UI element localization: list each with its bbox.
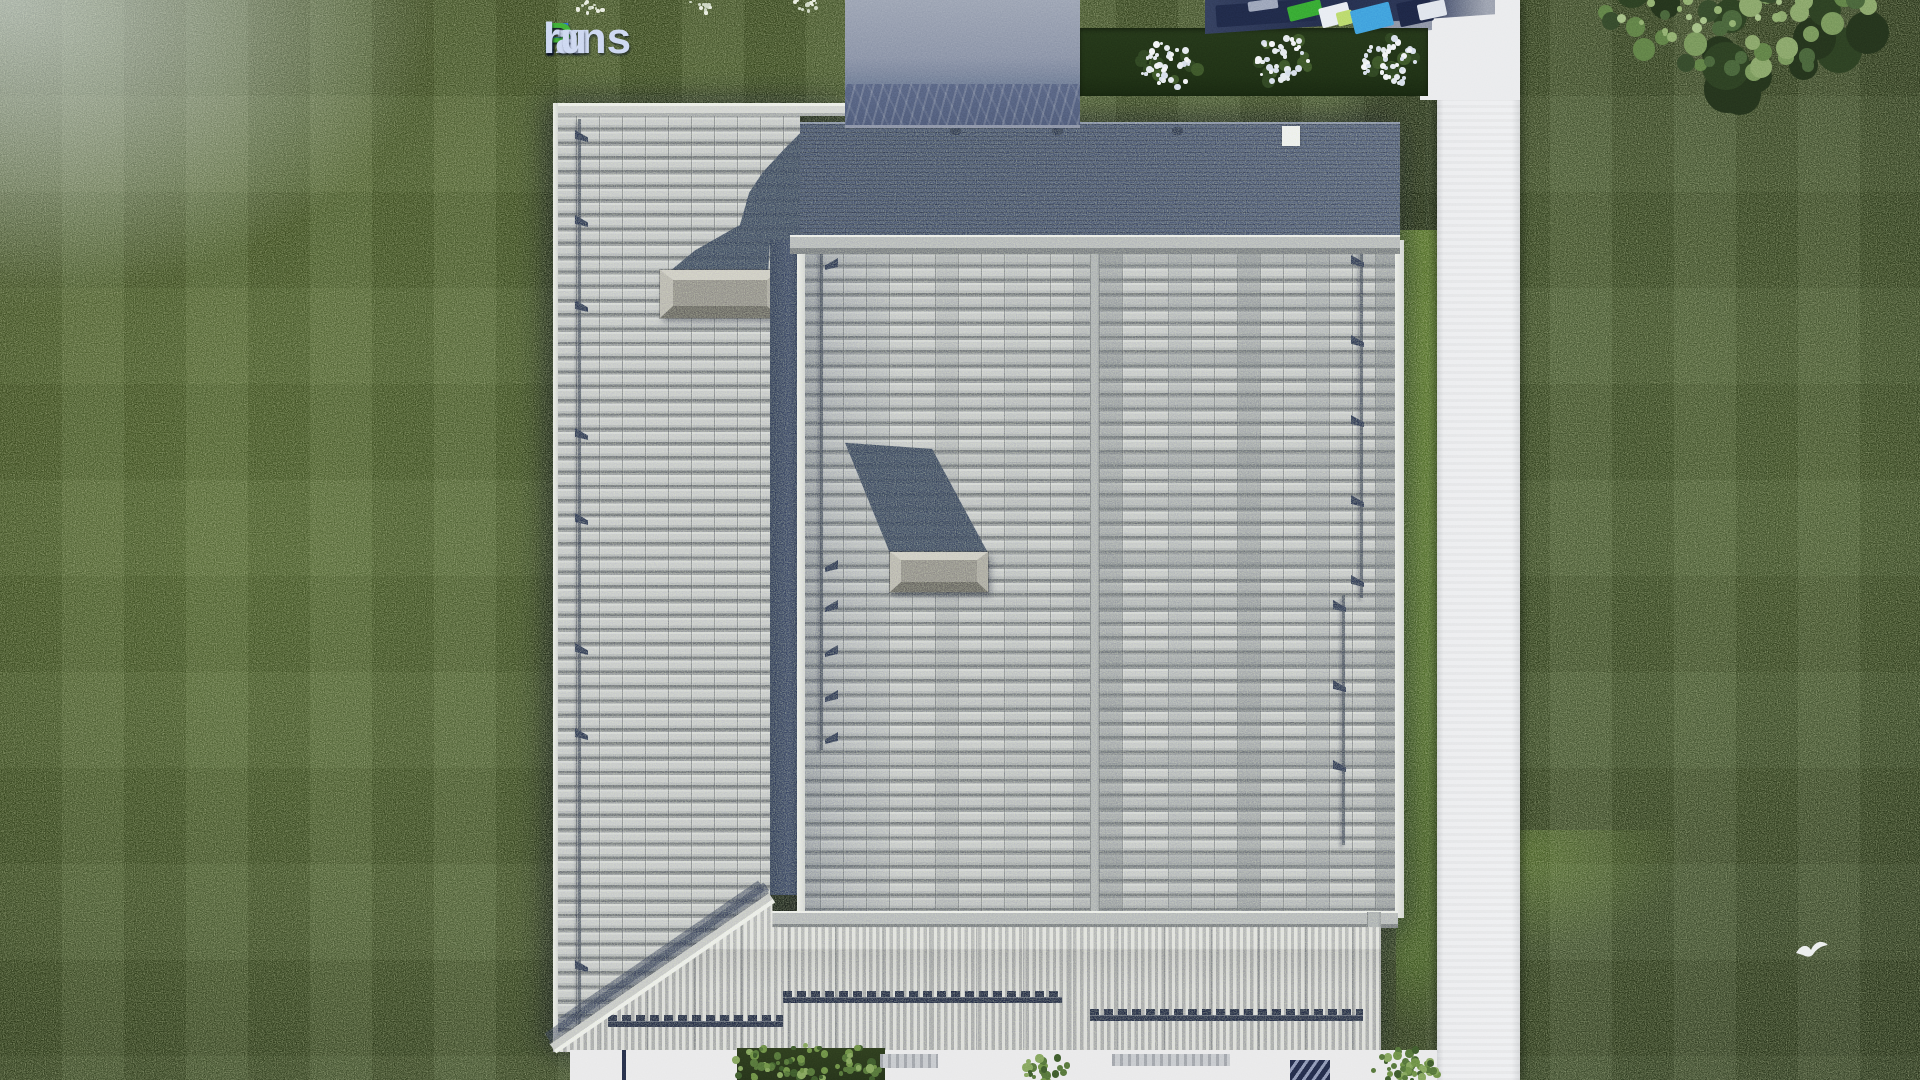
sprig-dot — [801, 8, 804, 11]
bush-leaf — [866, 1064, 874, 1072]
bush-leaf — [765, 1068, 769, 1072]
bush-flower — [1182, 47, 1189, 54]
grass-bright-corner — [1520, 830, 1690, 950]
bush-leaf — [856, 1065, 861, 1070]
bush-flower — [1278, 44, 1283, 49]
bush-flower — [1255, 56, 1262, 63]
bush-leaf — [1385, 1076, 1391, 1080]
bush-leaf — [1393, 1051, 1402, 1060]
sprig-dot — [709, 6, 712, 9]
bush-flower — [1153, 41, 1160, 48]
bush-flower — [1290, 37, 1294, 41]
tree-highlight — [1692, 23, 1702, 33]
bush-flower — [1162, 67, 1167, 72]
bush-leaf — [774, 1052, 781, 1059]
tree-highlight — [1686, 14, 1691, 19]
bottom-patio-strip — [553, 1046, 1443, 1080]
bush-flower — [1391, 44, 1397, 50]
sprig-dot — [576, 7, 578, 9]
bush-leaf — [1395, 1047, 1400, 1052]
tree-highlight — [1662, 28, 1668, 34]
bush-flower — [1146, 66, 1153, 73]
bush-flower — [1283, 54, 1288, 59]
bush-leaf — [846, 1058, 852, 1064]
bush-flower — [1383, 74, 1389, 80]
logo-letter: ru — [543, 14, 587, 64]
bush-leaf — [1412, 1046, 1420, 1054]
sprig-dot — [588, 6, 592, 10]
bush-flower — [1269, 78, 1275, 84]
bird — [1794, 936, 1830, 964]
bush-leaf — [732, 1056, 740, 1064]
bush-flower — [1153, 56, 1157, 60]
bush-leaf — [1412, 1071, 1418, 1077]
bush-leaf — [807, 1048, 811, 1052]
bush-flower — [1272, 48, 1278, 54]
patio-grate-1 — [880, 1054, 938, 1068]
aerial-roof-render: FixPlans.ru — [0, 0, 1920, 1080]
bush-leaf — [1421, 1066, 1427, 1072]
driveway — [845, 0, 1080, 128]
bush-flower — [1175, 48, 1179, 52]
bush-leaf — [817, 1046, 821, 1050]
bush-flower — [1269, 70, 1273, 74]
driveway-edge — [845, 125, 1080, 128]
bush-flower — [1376, 46, 1381, 51]
bush-leaf — [776, 1061, 780, 1065]
bush-flower — [1380, 63, 1386, 69]
bush-leaf — [1429, 1067, 1437, 1075]
bush-leaf — [854, 1045, 860, 1051]
bush-leaf — [1418, 1073, 1427, 1080]
bush-leaf — [784, 1071, 790, 1077]
bush-flower — [1366, 64, 1371, 69]
tree-foliage — [1745, 35, 1760, 50]
tree-highlight — [1667, 32, 1677, 42]
bush-leaf — [1041, 1066, 1047, 1072]
tree-highlight — [1617, 14, 1626, 23]
bush-leaf — [1054, 1054, 1061, 1061]
patio-grate-2 — [1112, 1054, 1230, 1066]
bush-flower — [1399, 79, 1405, 85]
bush-leaf — [800, 1068, 804, 1072]
sprig-dot — [600, 8, 605, 13]
bush-flower — [1286, 77, 1290, 81]
grass-bright-strip — [1396, 230, 1440, 1030]
bush-leaf — [779, 1066, 784, 1071]
bush-flower — [1390, 64, 1396, 70]
bush-flower — [1184, 57, 1189, 62]
bush-flower — [1269, 41, 1274, 46]
tree-highlight — [1755, 14, 1761, 20]
bush-flower — [1368, 49, 1373, 54]
bush-flower — [1160, 42, 1163, 45]
bush-leaf — [751, 1073, 756, 1078]
bush-flower — [1407, 48, 1412, 53]
bush-leaf — [819, 1075, 823, 1079]
bush-flower — [1278, 77, 1282, 81]
sprig-dot — [584, 2, 587, 5]
bush-leaf — [750, 1059, 758, 1067]
bush-leaf — [1402, 1075, 1408, 1080]
tree-highlight — [1647, 0, 1655, 7]
tree-shadow — [1846, 11, 1889, 54]
bush-leaf — [821, 1067, 828, 1074]
bush-flower — [1391, 35, 1398, 42]
door-mat — [1290, 1060, 1330, 1080]
bush-flower — [1264, 57, 1270, 63]
driveway-shadow-band — [845, 84, 1080, 128]
tree-highlight — [1700, 17, 1707, 24]
tree-foliage — [1724, 60, 1739, 75]
bush-flower — [1168, 77, 1174, 83]
bush-leaf — [1035, 1054, 1043, 1062]
bush-leaf — [1427, 1060, 1434, 1067]
bush-leaf — [821, 1050, 828, 1057]
tree-foliage — [1776, 37, 1798, 59]
sprig-dot — [814, 6, 818, 10]
bush-flower — [1400, 57, 1403, 60]
post — [622, 1050, 626, 1080]
tree-foliage — [1684, 32, 1707, 55]
bush-flower — [1174, 84, 1181, 91]
tree-highlight — [1772, 13, 1781, 22]
walkway-path — [1437, 0, 1520, 1080]
bush-leaf — [1064, 1062, 1070, 1068]
sprig-dot — [704, 11, 708, 15]
patio-walk-left — [570, 1050, 737, 1080]
bush-leaf — [811, 1076, 818, 1080]
bush-flower — [1154, 63, 1160, 69]
bush-leaf — [797, 1055, 805, 1063]
bush-flower — [1394, 74, 1400, 80]
tree-foliage — [1633, 38, 1655, 60]
sprig-dot — [699, 6, 703, 10]
bush-flower — [1285, 70, 1291, 76]
tree-foliage — [1821, 12, 1844, 35]
tree-foliage — [1660, 10, 1670, 20]
bush-flower — [1183, 79, 1188, 84]
